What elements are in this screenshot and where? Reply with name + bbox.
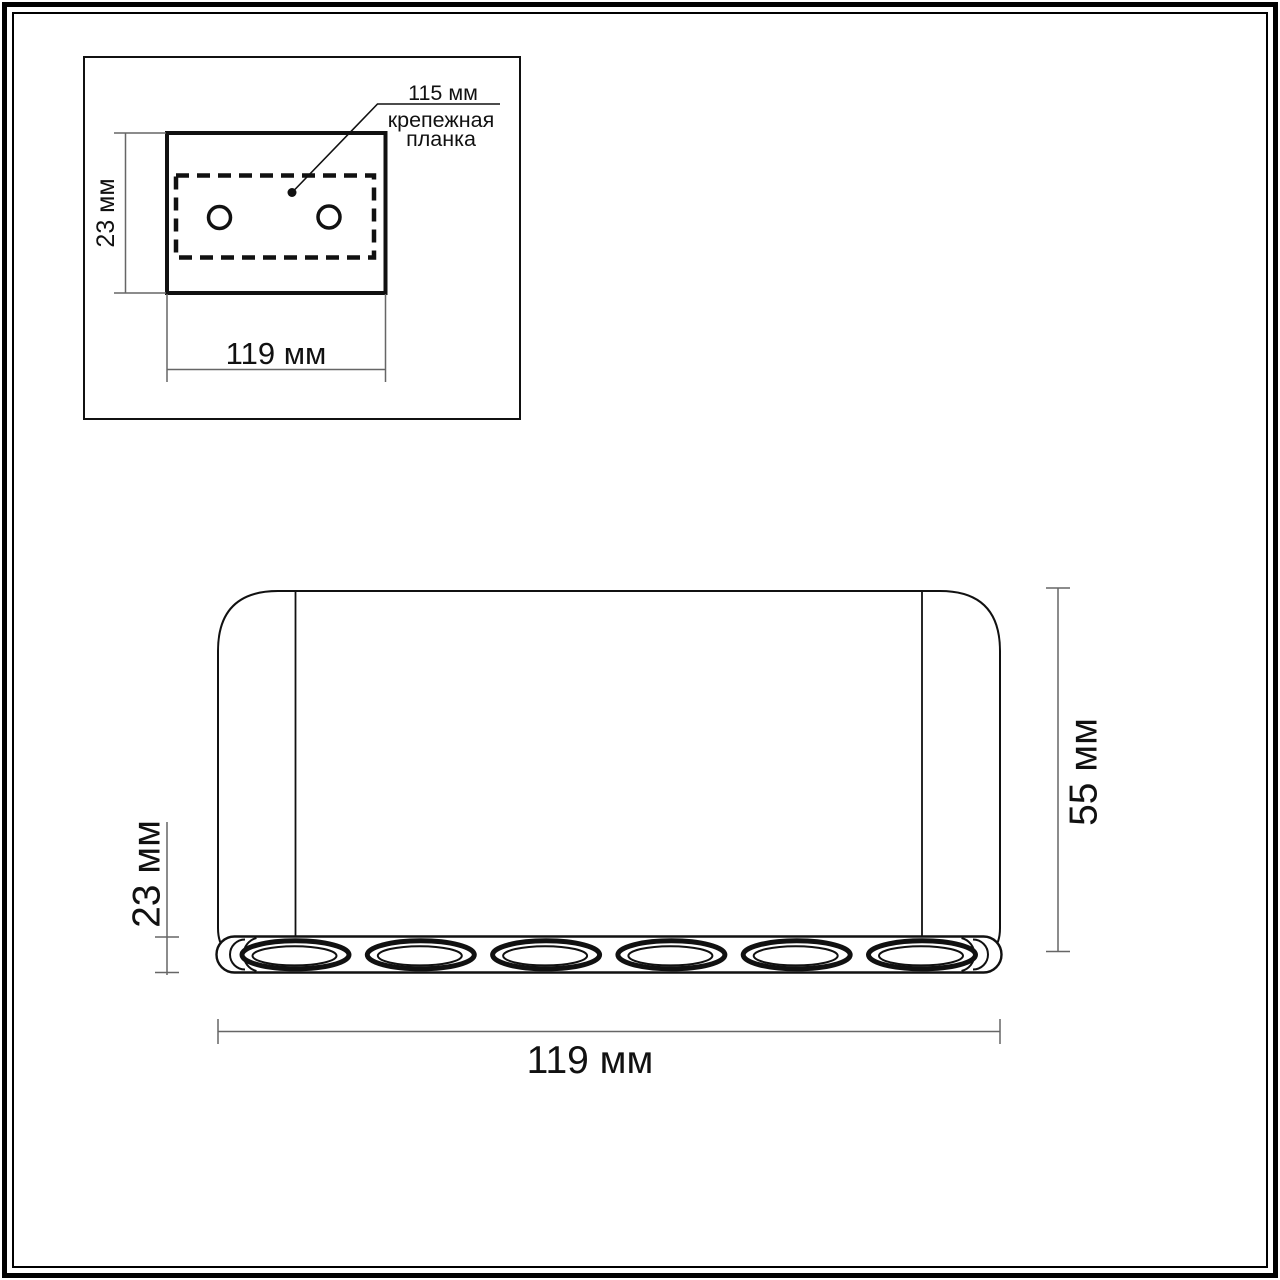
inset-height-label: 23 мм xyxy=(92,178,120,247)
mounting-plate-width-label: 115 мм xyxy=(408,81,478,105)
mounting-hole-left xyxy=(209,207,231,229)
drawing-page: 115 мм крепежная планка 23 мм 119 мм xyxy=(0,0,1280,1280)
light-lens xyxy=(493,941,600,969)
led-section-height-label: 23 мм xyxy=(126,820,169,928)
main-front-view: 23 мм 55 мм 119 мм xyxy=(126,588,1106,1082)
inset-height-extension-lines xyxy=(114,133,166,293)
inset-top-view: 115 мм крепежная планка 23 мм 119 мм xyxy=(84,57,520,419)
mounting-plate-name-line2: планка xyxy=(406,127,476,151)
light-lens xyxy=(869,941,976,969)
mounting-hole-right xyxy=(318,206,340,228)
width-label: 119 мм xyxy=(527,1039,654,1082)
light-lens xyxy=(618,941,725,969)
height-dimension: 55 мм xyxy=(1046,588,1106,952)
light-lens xyxy=(242,941,349,969)
leader-dot xyxy=(288,188,297,197)
inset-width-dimension: 119 мм xyxy=(167,294,386,382)
main-body-outline xyxy=(218,591,1000,958)
light-lens xyxy=(743,941,850,969)
inset-height-dimension: 23 мм xyxy=(92,133,166,293)
height-label: 55 мм xyxy=(1063,718,1106,826)
inset-width-label: 119 мм xyxy=(226,336,327,371)
width-dimension: 119 мм xyxy=(218,1019,1000,1082)
led-section-height-dimension: 23 мм xyxy=(126,820,180,975)
top-view-body-rect xyxy=(167,133,386,293)
mounting-plate-dashed-rect xyxy=(176,176,374,258)
technical-drawing-svg: 115 мм крепежная планка 23 мм 119 мм xyxy=(0,0,1280,1280)
light-lens xyxy=(367,941,474,969)
